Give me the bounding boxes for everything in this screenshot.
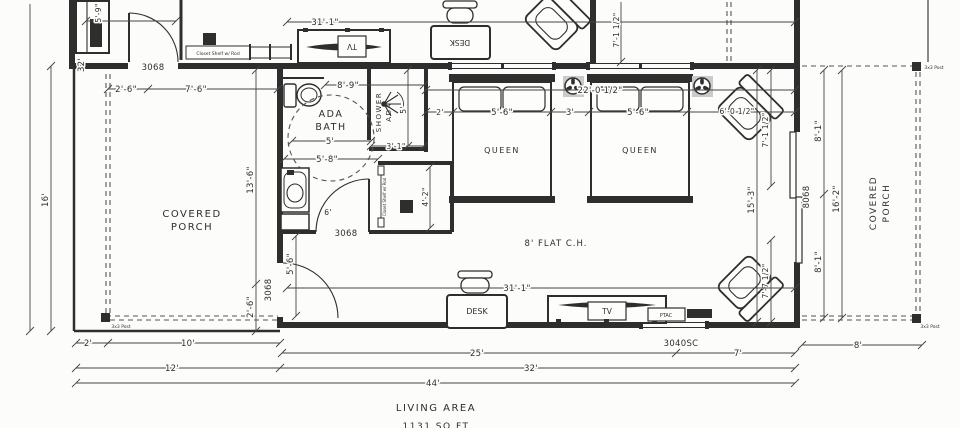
dim-label: 25' bbox=[470, 349, 484, 359]
post-label-bottom-left: 3x3 Post bbox=[111, 324, 130, 330]
dim-label: 15'-3" bbox=[747, 186, 757, 213]
room-label-porch-right-2: PORCH bbox=[882, 184, 892, 223]
bed-label-1: QUEEN bbox=[484, 146, 520, 155]
door-label-3068-top: 3068 bbox=[142, 63, 165, 73]
headboard bbox=[587, 74, 693, 82]
door-label-3068-bath: 3068 bbox=[335, 229, 358, 239]
dim-label: 16'-2" bbox=[832, 185, 842, 212]
dim-label: 5'-6" bbox=[286, 253, 296, 275]
tv-label-top: TV bbox=[346, 42, 358, 51]
dim-label: 10' bbox=[181, 339, 195, 349]
dimension-bottom-12-32: 12' 32' bbox=[72, 364, 799, 374]
post-marker-bottom-right bbox=[912, 314, 921, 323]
window-label-3040sc: 3040SC bbox=[664, 339, 699, 349]
dim-label: 8'-1" bbox=[814, 251, 824, 273]
desk-chair-top bbox=[443, 1, 477, 8]
dimension-shower-5: 5' bbox=[399, 66, 412, 150]
dim-label: 7'-6" bbox=[185, 85, 207, 95]
room-label-ada-bath-2: BATH bbox=[315, 122, 346, 133]
dimension-bath-8-9: 8'-9" bbox=[321, 81, 428, 91]
room-label-ada-bath-1: ADA bbox=[319, 109, 344, 120]
post-label-top-right: 3x3 Post bbox=[924, 65, 943, 71]
dimension-bottom-44: 44' bbox=[72, 379, 799, 389]
desk-bottom: DESK bbox=[447, 271, 507, 328]
closet-shelf-label-vertical: Closet Shelf w/ Rod bbox=[382, 177, 387, 216]
dim-label: 5'-8" bbox=[316, 155, 338, 165]
dimension-bath-5-8: 5'-8" bbox=[280, 155, 382, 165]
desk-top: DESK bbox=[431, 1, 490, 59]
floor-plan-canvas: Closet Shelf w/ Rod TV DESK bbox=[0, 0, 960, 428]
door-label-3068-entry: 3068 bbox=[264, 279, 274, 302]
dimension-entry-5-6: 5'-6" bbox=[286, 232, 300, 320]
footboard bbox=[449, 196, 555, 203]
dim-label: 8'-9" bbox=[337, 81, 359, 91]
dim-label: 7'-1 1/2" bbox=[612, 13, 621, 48]
dimension-right-7-1: 7'-1 1/2" bbox=[761, 66, 775, 190]
dim-label: 6'-0 1/2" bbox=[720, 107, 755, 116]
dim-label: 32' bbox=[77, 58, 87, 72]
dim-label: 31'-1" bbox=[503, 284, 530, 294]
desk-label-bottom: DESK bbox=[466, 307, 488, 316]
room-label-porch-left-2: PORCH bbox=[171, 222, 213, 233]
dim-label: 22'-0 1/2" bbox=[578, 86, 623, 96]
tv-label-bottom: TV bbox=[601, 307, 613, 316]
dim-label: 5'-9" bbox=[94, 3, 103, 22]
door-label-8068: 8068 bbox=[802, 186, 812, 209]
dim-label: 13'-6" bbox=[246, 166, 256, 193]
dim-label: 12' bbox=[165, 364, 179, 374]
tv-console-top: TV bbox=[298, 28, 390, 63]
dim-label: 44' bbox=[426, 379, 440, 389]
living-area-title: LIVING AREA bbox=[396, 403, 476, 414]
ptac-label: PTAC bbox=[660, 313, 673, 319]
ceiling-height-note: 8' FLAT C.H. bbox=[525, 239, 588, 249]
dimension-bottom-8: 8' bbox=[798, 341, 926, 351]
dim-label: 3'-1" bbox=[386, 142, 405, 151]
post-marker-top-right bbox=[912, 62, 921, 71]
dimension-closet-5-9: 5'-9" bbox=[82, 3, 180, 25]
post-label-bottom-right: 3x3 Post bbox=[920, 324, 939, 330]
dimension-bottom-25-7: 25' 7' bbox=[278, 349, 799, 359]
desk-chair-bottom bbox=[458, 271, 492, 278]
room-label-ada-shower-1: ADA bbox=[385, 102, 393, 121]
dimension-bottom-2-10: 2' 10' bbox=[72, 339, 284, 349]
dimension-porch-right-16-2: 16'-2" bbox=[832, 66, 846, 322]
dimension-porch-13-6: 13'-6" 2'-6" bbox=[246, 66, 260, 335]
queen-bed-1: QUEEN bbox=[449, 74, 555, 203]
vanity-sink-icon bbox=[281, 168, 309, 230]
dimension-bath-5: 5' bbox=[288, 137, 375, 147]
dim-label: 7'-1 1/2" bbox=[761, 113, 770, 148]
dim-label: 2' bbox=[84, 339, 92, 349]
desk-label-top: DESK bbox=[449, 38, 470, 47]
room-label-porch-right-1: COVERED bbox=[869, 176, 879, 230]
bed-label-2: QUEEN bbox=[622, 146, 658, 155]
bathroom-fixtures bbox=[281, 78, 413, 230]
dimension-top-7-1: 7'-1 1/2" bbox=[612, 2, 625, 66]
ptac-unit: PTAC bbox=[648, 308, 712, 321]
dim-label: 8' bbox=[854, 341, 862, 351]
ceiling-fan-icon-2 bbox=[692, 76, 713, 97]
dim-label: 4'-2" bbox=[421, 187, 430, 206]
closet-shelf-label: Closet Shelf w/ Rod bbox=[196, 51, 240, 57]
armchair-top bbox=[521, 0, 591, 54]
post-marker-bottom-left bbox=[101, 313, 110, 322]
room-label-porch-left-1: COVERED bbox=[162, 209, 221, 220]
utility-closet bbox=[76, 1, 109, 53]
living-area-sqft: 1131 SQ FT bbox=[403, 422, 470, 428]
dim-label: 2'-6" bbox=[115, 85, 137, 95]
closet-shelf-unit: Closet Shelf w/ Rod bbox=[186, 33, 292, 60]
dim-label: 2' bbox=[436, 108, 443, 117]
dimension-porch-right-8-1: 8'-1" 8'-1" bbox=[814, 66, 828, 322]
dimension-closet-4-2: 4'-2" bbox=[421, 163, 434, 232]
floor-plan-drawing: Closet Shelf w/ Rod TV DESK bbox=[0, 0, 960, 428]
dim-label: 31'-1" bbox=[311, 18, 338, 28]
room-label-ada-shower-2: SHOWER bbox=[375, 92, 383, 132]
dim-label: 5' bbox=[399, 106, 408, 113]
dim-label: 2'-6" bbox=[246, 296, 256, 318]
dimension-porch-left: 2'-6" 7'-6" bbox=[104, 85, 282, 95]
dimension-door-clear-6: 6' bbox=[324, 208, 331, 217]
footboard bbox=[587, 196, 693, 203]
dim-label: 7' bbox=[734, 349, 742, 359]
dim-label: 16' bbox=[41, 193, 51, 207]
headboard bbox=[449, 74, 555, 82]
dim-label: 5'-6" bbox=[491, 108, 513, 118]
toilet-icon bbox=[284, 84, 321, 107]
dim-label: 32' bbox=[524, 364, 538, 374]
dim-label: 8'-1" bbox=[814, 120, 824, 142]
armchair-right-lower bbox=[714, 252, 784, 322]
dimension-left-16: 16' bbox=[41, 62, 55, 335]
dim-label: 5'-6" bbox=[627, 108, 649, 118]
dim-label: 7'-7 1/2" bbox=[761, 264, 770, 299]
dim-label: 3' bbox=[566, 108, 574, 118]
dim-label: 5' bbox=[326, 137, 334, 147]
sliding-door-8068 bbox=[790, 132, 802, 263]
